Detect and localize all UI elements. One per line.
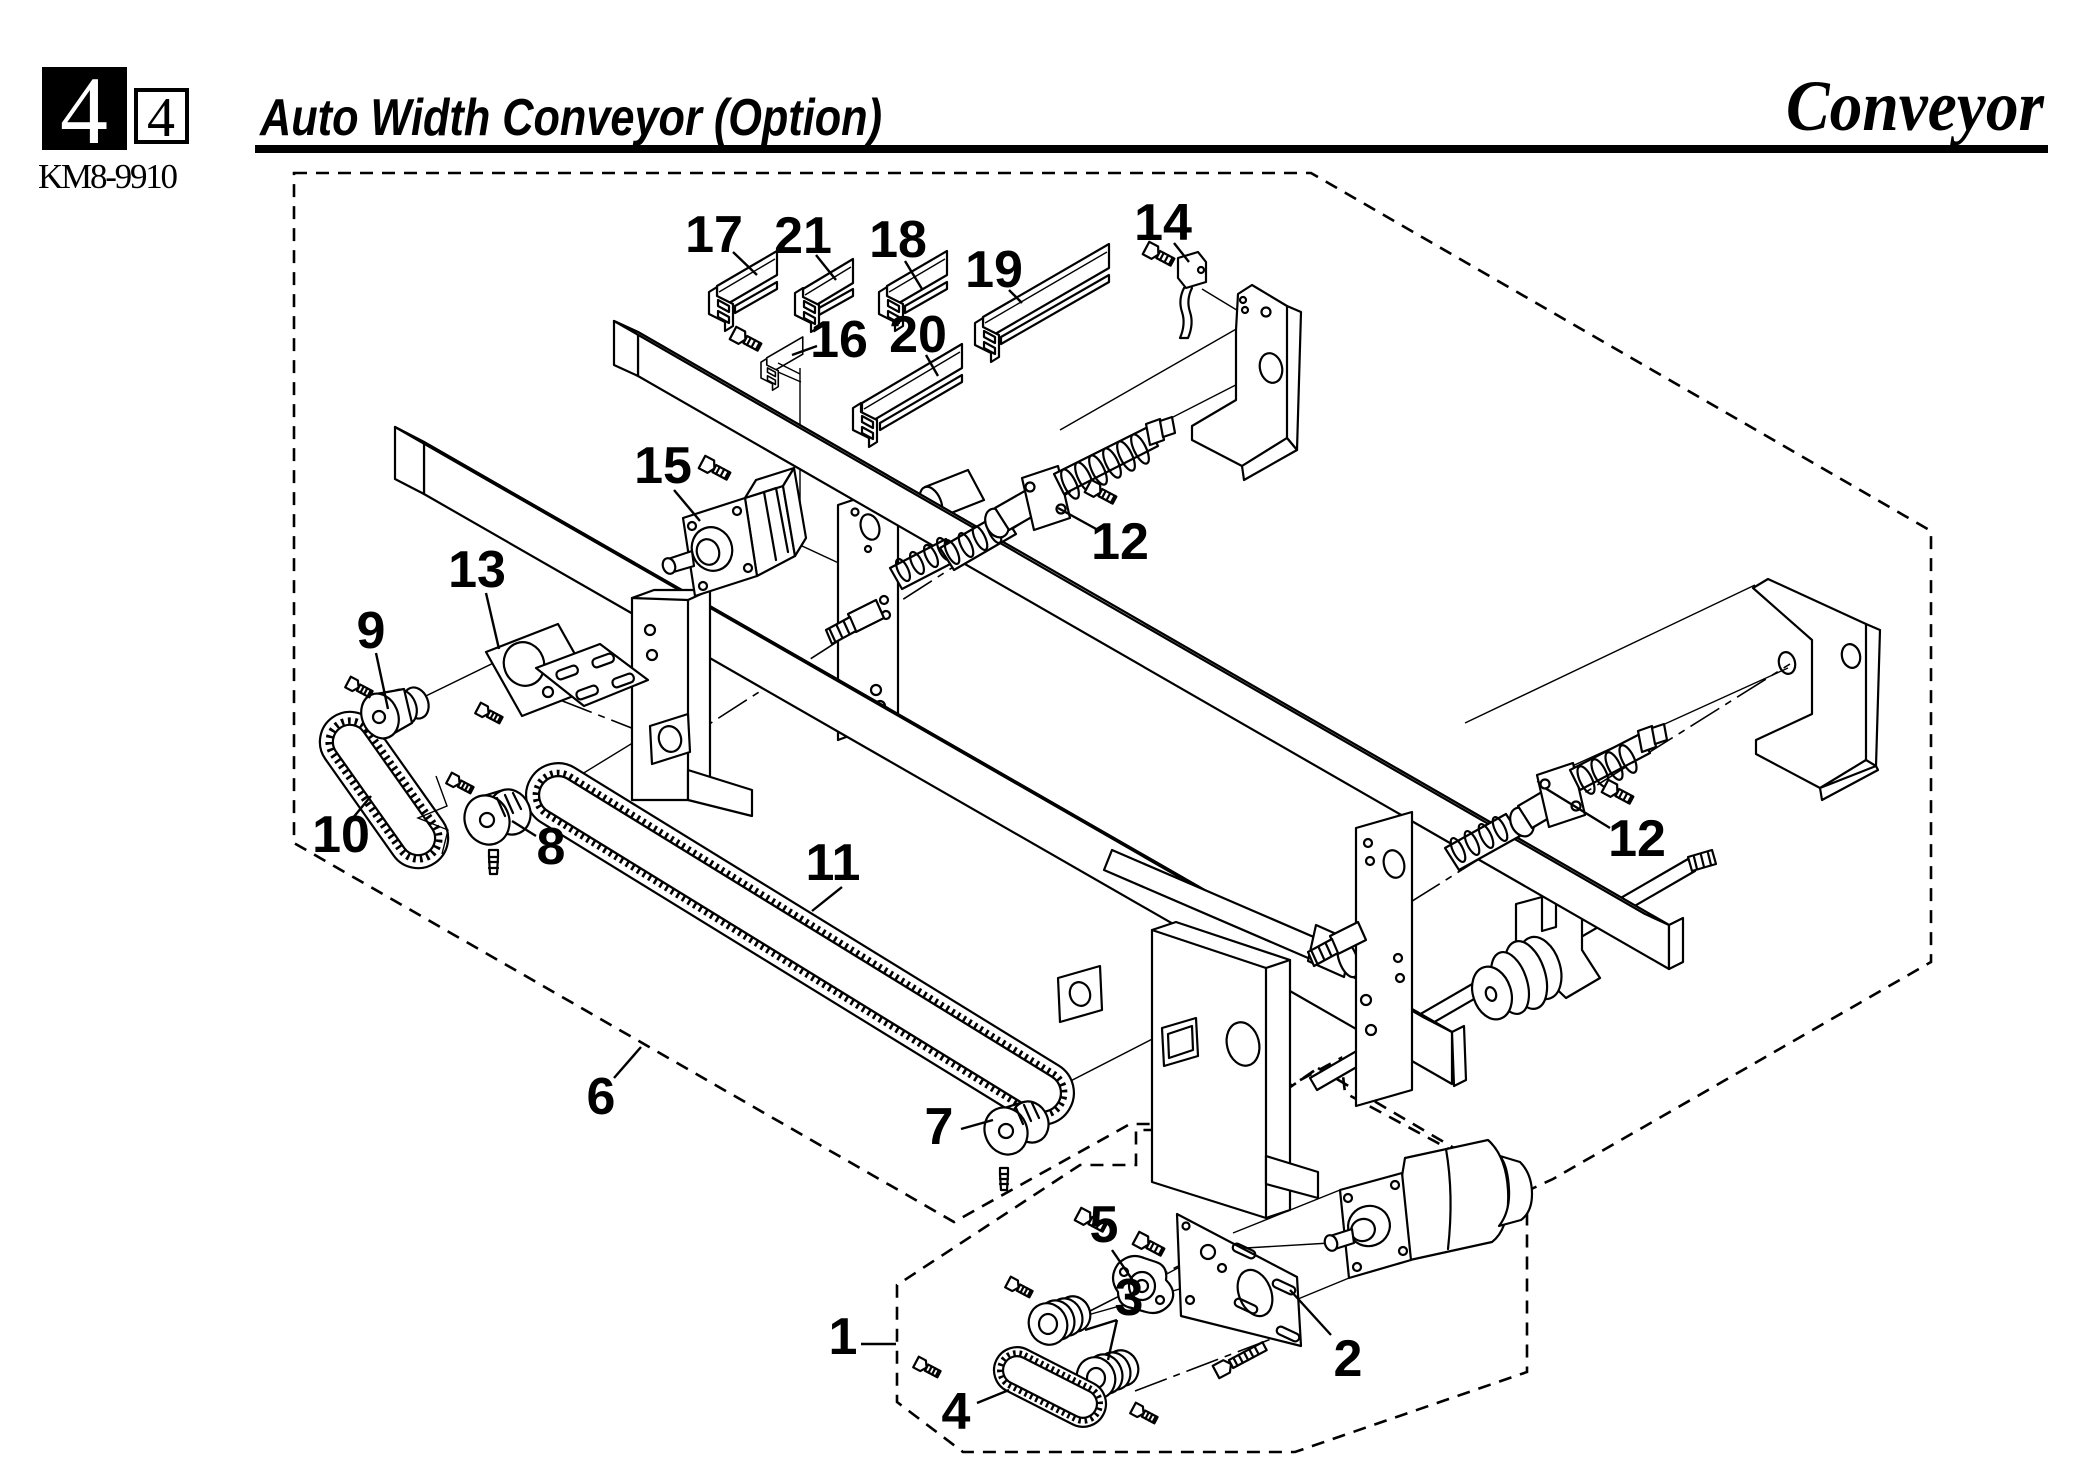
svg-text:3: 3 — [1115, 1269, 1144, 1327]
svg-text:4: 4 — [147, 87, 175, 149]
svg-text:15: 15 — [634, 437, 692, 495]
svg-text:21: 21 — [774, 207, 832, 265]
svg-text:9: 9 — [357, 602, 386, 660]
svg-text:12: 12 — [1091, 513, 1149, 571]
svg-text:6: 6 — [587, 1068, 616, 1126]
svg-text:1: 1 — [829, 1308, 858, 1366]
svg-text:Auto Width Conveyor (Option): Auto Width Conveyor (Option) — [258, 89, 882, 147]
svg-text:2: 2 — [1334, 1330, 1363, 1388]
svg-text:18: 18 — [869, 211, 927, 269]
svg-text:11: 11 — [806, 834, 861, 892]
svg-text:20: 20 — [889, 306, 947, 364]
svg-text:KM8-9910: KM8-9910 — [38, 157, 178, 196]
svg-text:19: 19 — [965, 241, 1023, 299]
svg-text:5: 5 — [1090, 1196, 1119, 1254]
svg-text:17: 17 — [685, 206, 743, 264]
svg-text:8: 8 — [537, 818, 566, 876]
svg-text:7: 7 — [925, 1098, 954, 1156]
svg-text:4: 4 — [942, 1383, 971, 1441]
svg-text:12: 12 — [1608, 810, 1666, 868]
svg-text:13: 13 — [448, 541, 506, 599]
svg-text:10: 10 — [312, 806, 370, 864]
svg-text:Conveyor: Conveyor — [1786, 66, 2045, 146]
svg-text:14: 14 — [1134, 194, 1192, 252]
svg-text:16: 16 — [810, 311, 868, 369]
svg-text:4: 4 — [60, 57, 108, 164]
